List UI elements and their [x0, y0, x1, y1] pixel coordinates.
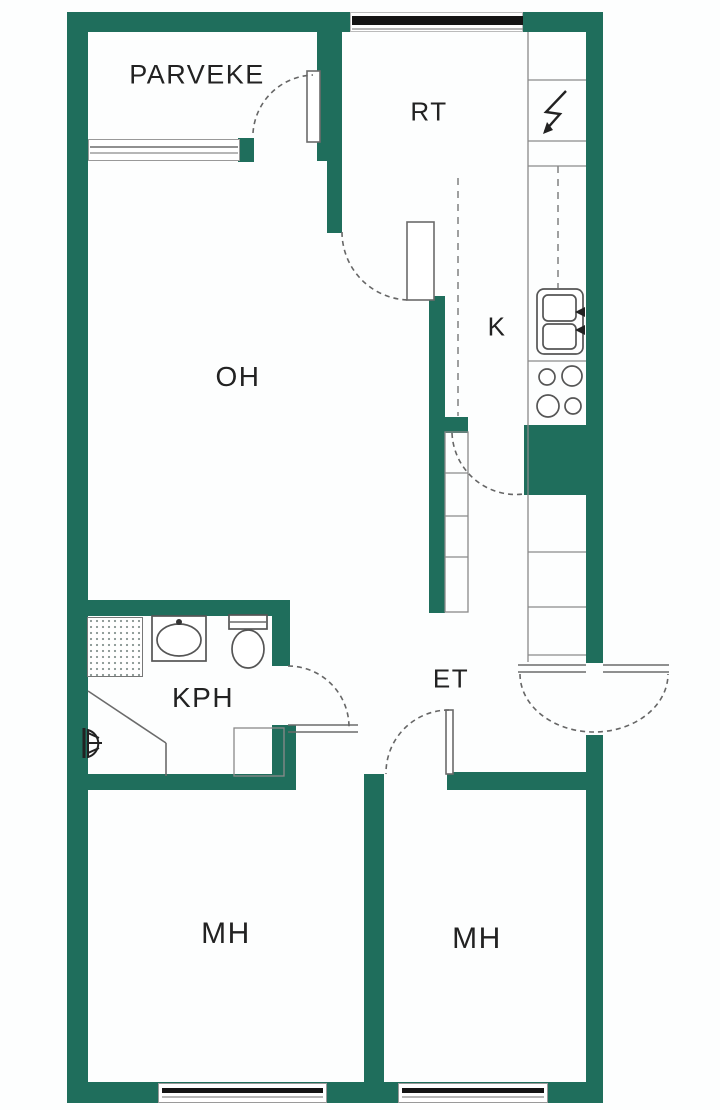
room-label-kph: KPH — [172, 682, 234, 714]
kph-chamfer-wall — [88, 691, 166, 776]
rt-window-glazing — [352, 16, 523, 29]
room-label-et: ET — [433, 664, 469, 695]
kph-duct-alcove — [234, 728, 284, 776]
rt-oh-door — [342, 222, 434, 300]
floor-plan: PARVEKE RT OH K KPH ET MH MH — [0, 0, 720, 1110]
balcony-window-glazing — [90, 147, 238, 153]
room-label-oh: OH — [216, 361, 261, 393]
room-label-parveke: PARVEKE — [129, 60, 265, 91]
room-label-k: K — [488, 312, 507, 343]
entry-door — [518, 665, 669, 732]
room-label-mh-right: MH — [452, 922, 502, 956]
kitchen-sink — [537, 289, 585, 354]
lightning-icon — [543, 91, 566, 134]
bathroom-door — [288, 666, 358, 732]
toilet — [229, 615, 267, 668]
bedroom-window-left-glazing — [162, 1088, 323, 1097]
kitchen-stove — [528, 361, 586, 417]
bedroom-window-right-glazing — [402, 1088, 544, 1097]
kitchen-door — [452, 433, 524, 495]
room-label-rt: RT — [410, 97, 447, 128]
floor-drain-vent-icon — [84, 728, 102, 758]
plan-linework — [0, 0, 720, 1110]
bedroom-door — [386, 710, 453, 774]
washbasin — [152, 616, 206, 661]
tall-cabinet-column — [445, 432, 468, 612]
room-label-mh-left: MH — [201, 917, 251, 951]
